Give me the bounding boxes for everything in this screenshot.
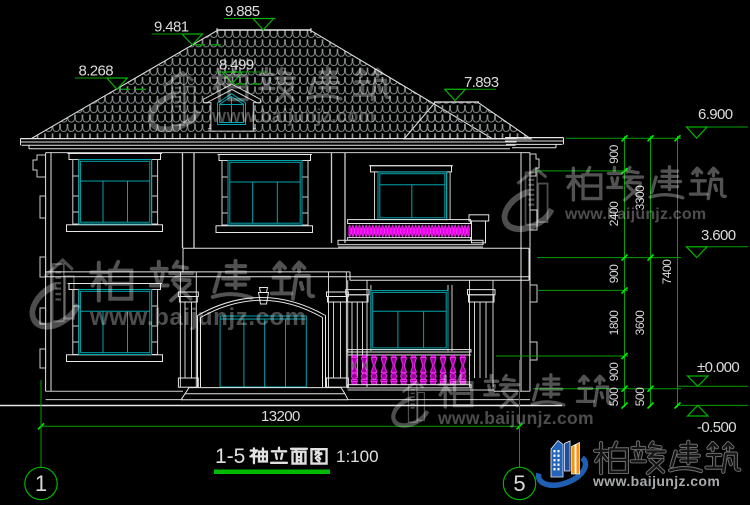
svg-text:9.885: 9.885	[225, 3, 260, 20]
svg-text:1-5: 1-5	[215, 445, 245, 468]
svg-text:3300: 3300	[633, 185, 647, 211]
svg-text:6.900: 6.900	[698, 106, 733, 123]
svg-text:±0.000: ±0.000	[697, 359, 739, 376]
svg-text:900: 900	[607, 264, 621, 283]
svg-text:3.600: 3.600	[701, 227, 736, 244]
svg-text:2400: 2400	[607, 201, 621, 227]
svg-text:7.893: 7.893	[464, 74, 499, 91]
svg-text:13200: 13200	[261, 408, 300, 425]
svg-text:8.268: 8.268	[79, 63, 114, 80]
svg-text:9.481: 9.481	[154, 19, 189, 36]
svg-text:-0.500: -0.500	[697, 419, 736, 436]
svg-text:900: 900	[607, 144, 621, 163]
svg-text:3600: 3600	[633, 310, 647, 336]
svg-text:1: 1	[35, 471, 47, 496]
svg-text:500: 500	[633, 387, 647, 406]
svg-text:7400: 7400	[660, 259, 674, 285]
svg-text:5: 5	[513, 471, 525, 496]
svg-text:8.499: 8.499	[219, 57, 254, 74]
svg-text:500: 500	[607, 387, 621, 406]
svg-text:900: 900	[607, 362, 621, 381]
svg-text:1800: 1800	[607, 310, 621, 336]
svg-text:1:100: 1:100	[336, 447, 379, 466]
